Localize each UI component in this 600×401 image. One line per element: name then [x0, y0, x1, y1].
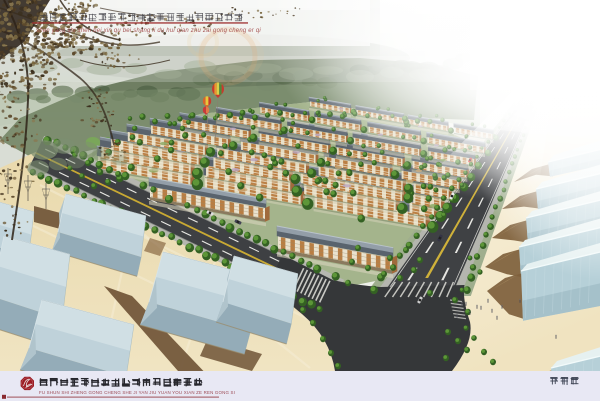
svg-text:FU SHUN SHI ZHENG GONG CHENG S: FU SHUN SHI ZHENG GONG CHENG SHE JI YAN … [39, 390, 235, 395]
svg-text:shen yang shi shen bei xin qu: shen yang shi shen bei xin qu bei shang … [36, 28, 261, 34]
